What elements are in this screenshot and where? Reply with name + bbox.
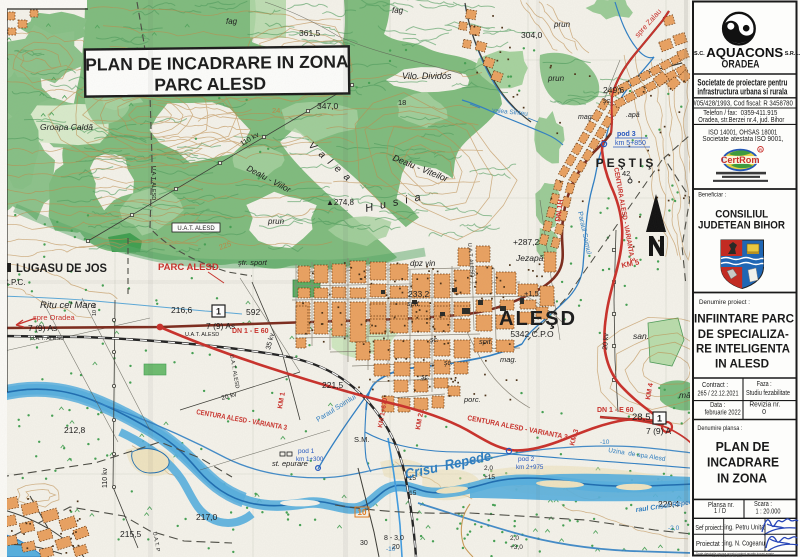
svg-text:CertRom: CertRom [721,155,760,165]
svg-text:DE SPECIALIZA-: DE SPECIALIZA- [698,327,789,341]
svg-text:Scara :: Scara : [754,501,772,508]
svg-text:Denumire proiect :: Denumire proiect : [699,299,750,306]
svg-text:INCADRARE: INCADRARE [707,454,779,469]
svg-text:Revizia nr.: Revizia nr. [749,402,780,409]
svg-text:RE INTELIGENTA: RE INTELIGENTA [696,342,790,356]
svg-text:Studiu fezabilitate: Studiu fezabilitate [746,390,790,397]
svg-text:265 / 22.12.2021: 265 / 22.12.2021 [698,391,739,398]
svg-text:1 : 20.000: 1 : 20.000 [756,509,781,516]
svg-text:INFIINTARE PARC: INFIINTARE PARC [694,312,794,326]
svg-text:JUDETEAN BIHOR: JUDETEAN BIHOR [698,220,785,232]
svg-text:Oradea, str.Berzei nr.4, jud.: Oradea, str.Berzei nr.4, jud. Bihor [698,115,784,124]
svg-text:Proiectat :: Proiectat : [696,541,723,548]
svg-text:IN ZONA: IN ZONA [717,471,767,486]
svg-text:ORADEA: ORADEA [722,59,760,71]
svg-text:IN ALESD: IN ALESD [715,357,769,371]
svg-text:PLAN DE: PLAN DE [716,439,770,454]
svg-text:februarie 2022: februarie 2022 [705,409,741,416]
svg-text:1 / D: 1 / D [714,508,726,515]
svg-text:ing. N. Cogeanu: ing. N. Cogeanu [724,541,765,548]
svg-text:Data :: Data : [710,402,725,409]
svg-text:Sef proiect:: Sef proiect: [695,525,723,532]
svg-text:0: 0 [762,409,766,416]
svg-text:ing. Petru Unita: ing. Petru Unita [724,525,764,532]
svg-text:Faza :: Faza : [757,381,772,388]
svg-text:Denumire plansa :: Denumire plansa : [697,425,742,432]
svg-text:Beneficiar :: Beneficiar : [698,191,726,198]
svg-text:infrastructura urbana si rural: infrastructura urbana si rurala [697,85,788,96]
svg-text:Contract :: Contract : [702,382,728,389]
svg-text:J/05/428/1993, Cod fiscal: R 3: J/05/428/1993, Cod fiscal: R 3458780 [692,98,793,107]
svg-text:Societate atestata ISO 9001,: Societate atestata ISO 9001, [702,134,783,143]
svg-text:R: R [759,148,762,152]
